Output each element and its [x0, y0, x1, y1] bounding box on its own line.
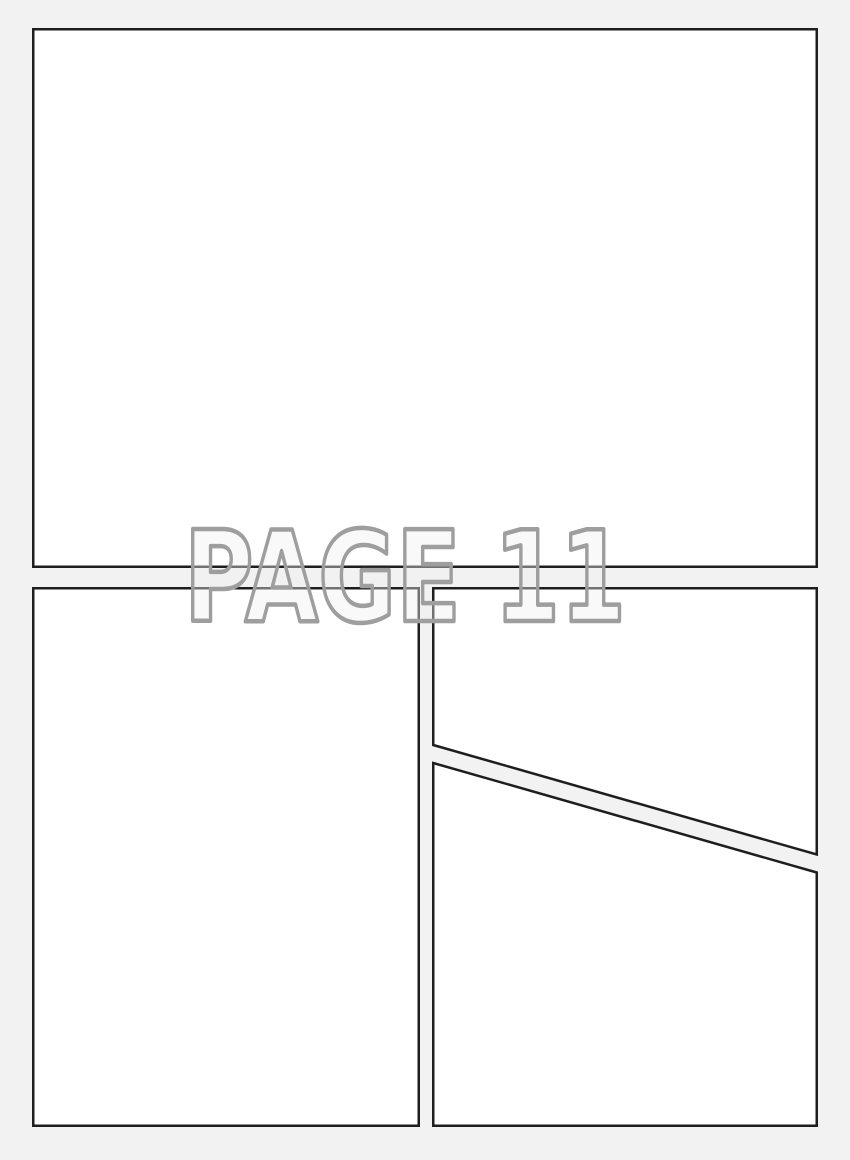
page-number-label: PAGE 11 — [184, 504, 626, 651]
panel-top-wide — [33, 29, 817, 567]
panel-bottom-left — [33, 588, 419, 1126]
page-canvas: PAGE 11 — [0, 0, 850, 1160]
comic-page-template: PAGE 11 — [0, 0, 850, 1160]
